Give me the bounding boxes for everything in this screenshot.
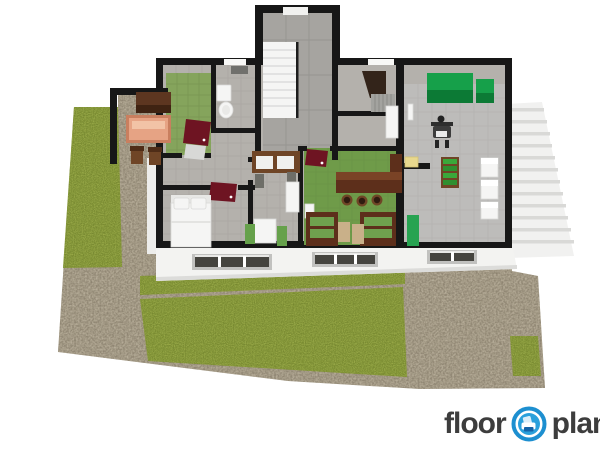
toilet-tank: [217, 85, 231, 101]
bar-counter-end: [390, 154, 402, 174]
bar-counter-top: [336, 172, 402, 180]
bench-cushion-4: [364, 229, 392, 238]
patio-sideboard: [136, 92, 171, 113]
lawn-right-patch: [510, 336, 541, 376]
shelf-inset-2: [277, 156, 294, 169]
dining-chair-1: [338, 222, 350, 242]
logo-text-floor: floor: [444, 409, 506, 439]
door-maroon-kitchen: [305, 149, 328, 167]
shelf-inset-1: [256, 156, 273, 169]
floorplanner-armchair-icon: [511, 406, 547, 442]
yellow-crate: [405, 157, 418, 167]
bar-stools: [342, 195, 383, 207]
patio-wall-west: [110, 88, 117, 164]
plant-stand: [441, 157, 459, 188]
north-window-sill-2: [368, 59, 394, 65]
small-table: [254, 219, 276, 243]
floorplanner-3d-render: floor planner: [0, 0, 600, 450]
floorplanner-logo: floor planner: [444, 406, 600, 442]
front-window-2: [312, 252, 378, 267]
green-chair-right: [277, 226, 287, 246]
green-mat: [407, 215, 419, 246]
pillow-left: [174, 198, 189, 209]
bench-cushion-3: [364, 217, 392, 226]
green-chair-left: [245, 224, 255, 244]
bedroom: [171, 195, 211, 247]
dining-chair-2: [352, 224, 364, 244]
side-facade-left: [147, 158, 156, 254]
bench-cushion-2: [310, 229, 334, 238]
entrance-hall: [263, 7, 332, 160]
speaker-left: [255, 174, 264, 188]
front-window-3: [427, 250, 477, 264]
floorplan-scene: [0, 0, 600, 450]
outdoor-chair-2: [148, 147, 162, 165]
bathroom-mirror: [231, 66, 248, 74]
pillow-right: [191, 198, 206, 209]
wardrobe: [286, 182, 299, 212]
front-window-1: [192, 254, 272, 270]
logo-text-planner: planner: [552, 409, 600, 439]
outdoor-table: [126, 115, 171, 143]
stair-railing: [296, 42, 299, 118]
entry-door-sill: [283, 7, 308, 15]
outdoor-chair-1: [130, 146, 144, 164]
north-window-sill-1: [224, 59, 246, 65]
door-maroon-bedroom: [209, 182, 237, 202]
white-appliance-boxes: [481, 158, 498, 219]
bed-mattress: [171, 203, 211, 247]
toilet-seat: [222, 105, 230, 115]
bench-cushion-1: [310, 217, 334, 226]
green-storage-cabinet-large: [427, 73, 473, 103]
garage-side-door: [408, 104, 413, 120]
green-storage-cabinet-small: [476, 79, 494, 103]
tall-cabinet: [386, 106, 398, 138]
